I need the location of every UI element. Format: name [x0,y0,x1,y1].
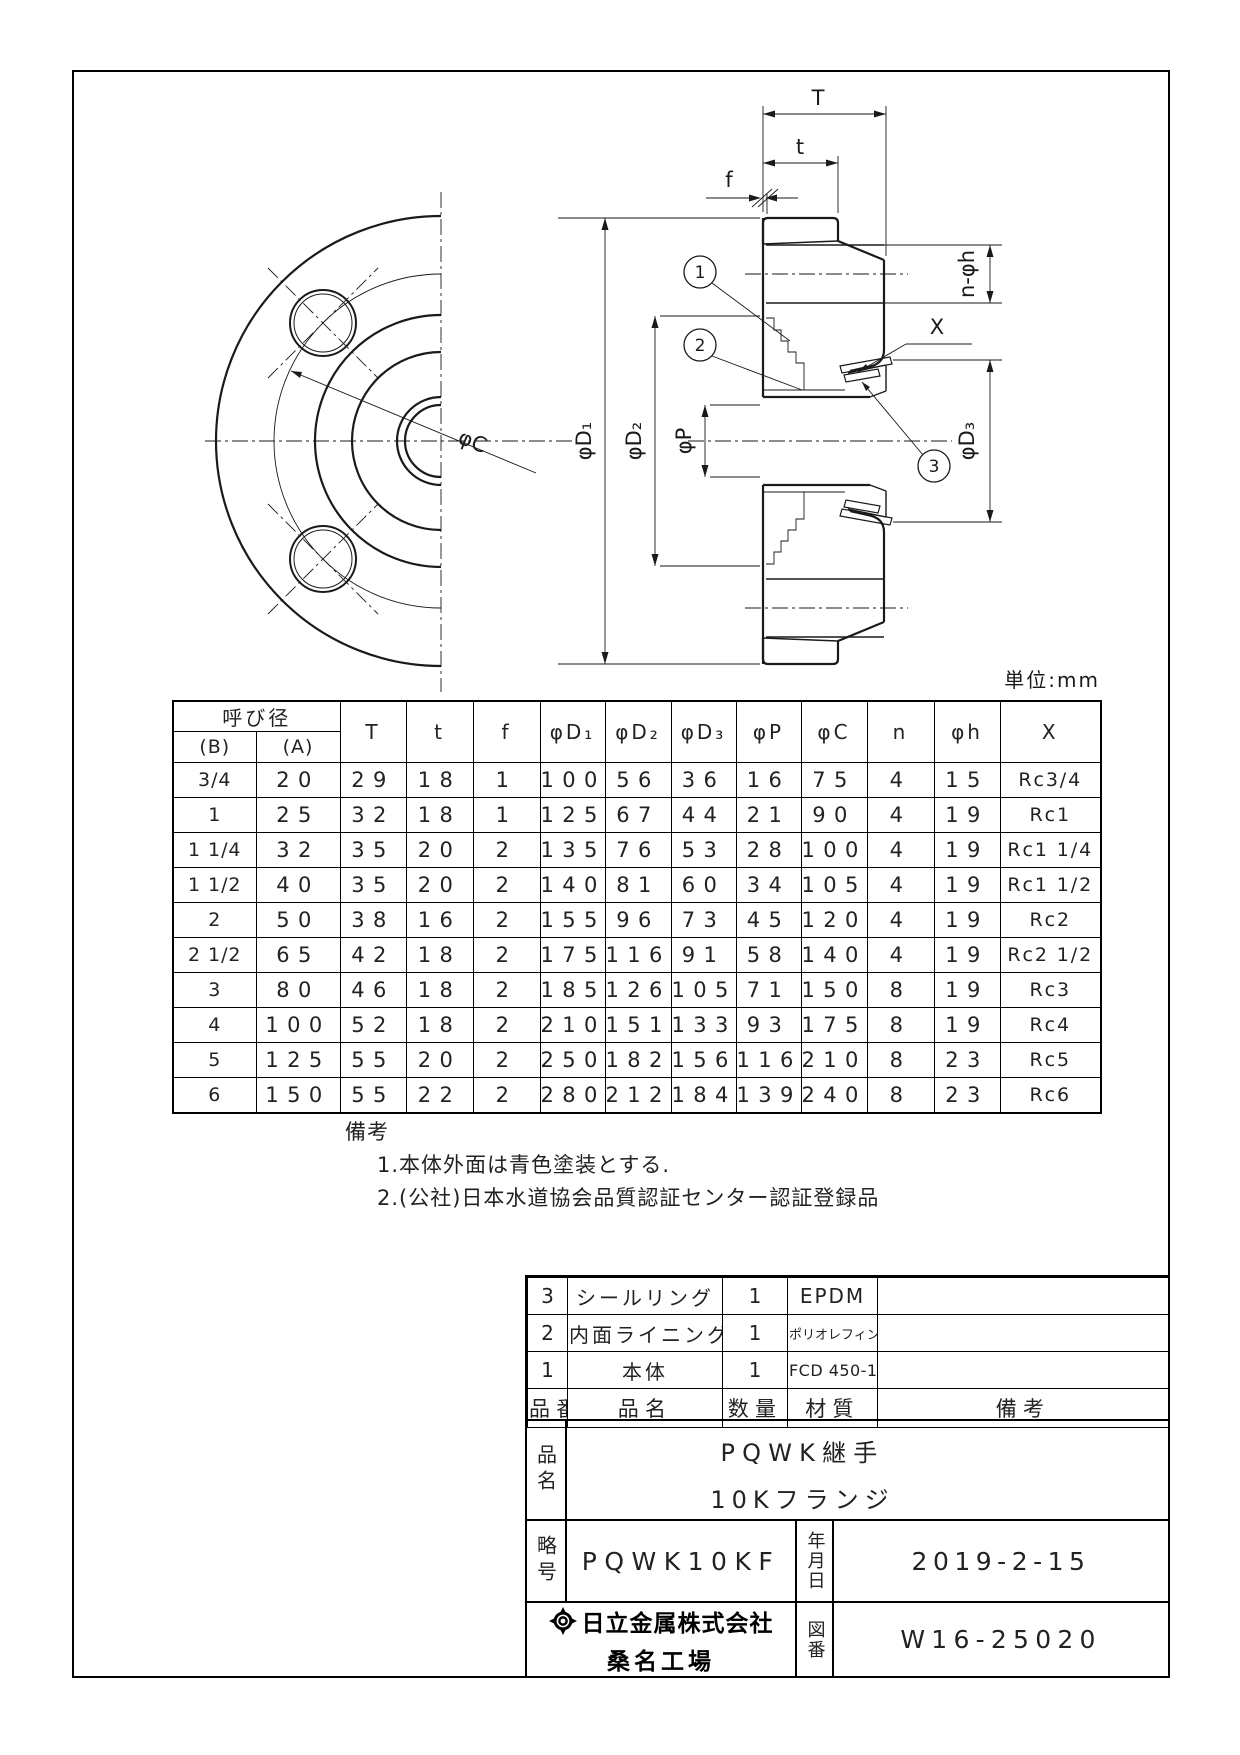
dim-cell: 19 [934,903,1000,938]
dim-label-t: t [796,135,804,159]
table-row: 1 1/43235202135765328100419Rc1 1/4 [173,833,1101,868]
dim-cell: 93 [736,1008,801,1043]
dim-cell: 18 [406,763,473,798]
dim-cell: 21 [736,798,801,833]
dimension-labels: T t f X n-φh φD₁ φD₂ φD₃ φP φC [455,86,979,460]
parts-cell [878,1278,1169,1315]
dim-cell: 105 [671,973,736,1008]
dim-cell: 212 [605,1078,671,1114]
dim-cell: 20 [406,833,473,868]
dim-cell: 91 [671,938,736,973]
dim-cell: 19 [934,973,1000,1008]
dim-label-phiP: φP [672,428,696,455]
company-name: 日立金属株式会社 [582,1604,774,1638]
dim-cell: 18 [406,973,473,1008]
dim-cell: 5 [173,1043,256,1078]
dim-cell: 23 [934,1078,1000,1114]
dim-cell: Rc1 1/2 [1000,868,1101,903]
date-label-cell: 年月日 [797,1521,834,1601]
dim-cell: Rc2 1/2 [1000,938,1101,973]
drawing-sheet: T t f X n-φh φD₁ φD₂ φD₃ φP φC 1 2 3 単位:… [0,0,1240,1755]
table-row: 1 1/24035202140816034105419Rc1 1/2 [173,868,1101,903]
dim-cell: 8 [867,1078,934,1114]
dim-header: X [1000,701,1101,763]
balloon-1: 1 [695,263,706,283]
parts-cell: EPDM [788,1278,878,1315]
dim-cell: 184 [671,1078,736,1114]
dim-header: φh [934,701,1000,763]
dim-cell: Rc2 [1000,903,1101,938]
dim-cell: 8 [867,973,934,1008]
dim-cell: 155 [540,903,605,938]
dim-subheader: (B) [173,732,256,763]
dim-cell: 4 [867,833,934,868]
dim-cell: 46 [340,973,406,1008]
parts-row: 3シールリング1EPDM [528,1278,1169,1315]
code-label-cell: 略号 [527,1521,567,1601]
front-centerlines [205,192,575,692]
dim-header: t [406,701,473,763]
company-cell: 日立金属株式会社 桑名工場 [527,1603,797,1676]
dim-cell: 151 [605,1008,671,1043]
dim-cell: Rc4 [1000,1008,1101,1043]
dim-cell: Rc1 1/4 [1000,833,1101,868]
dim-cell: 20 [406,868,473,903]
parts-list: 3シールリング1EPDM2内面ライニング1ポリオレフィン樹脂1本体1FCD 45… [527,1277,1169,1428]
dim-cell: 34 [736,868,801,903]
title-block: 3シールリング1EPDM2内面ライニング1ポリオレフィン樹脂1本体1FCD 45… [525,1275,1170,1678]
section-view [688,218,952,664]
dim-cell: 55 [340,1078,406,1114]
dim-cell: 55 [340,1043,406,1078]
parts-cell: FCD 450-10 [788,1352,878,1389]
dim-cell: 1 [173,798,256,833]
dim-cell: Rc3/4 [1000,763,1101,798]
balloon-leaders [712,283,923,455]
dim-cell: 25 [256,798,340,833]
dim-cell: 32 [340,798,406,833]
dim-cell: 90 [801,798,867,833]
dim-header: f [473,701,540,763]
dim-cell: 38 [340,903,406,938]
dim-cell: 3 [173,973,256,1008]
dim-cell: 175 [801,1008,867,1043]
dim-cell: 185 [540,973,605,1008]
dim-cell: 4 [867,798,934,833]
dim-cell: 116 [605,938,671,973]
date-label: 年月日 [802,1531,828,1591]
dim-subheader: (A) [256,732,340,763]
bolt-hole-top [268,268,378,378]
product-name-line1: PQWK継手 [720,1433,884,1468]
dim-cell: 3/4 [173,763,256,798]
dim-cell: 120 [801,903,867,938]
dim-cell: 210 [540,1008,605,1043]
dim-cell: 4 [867,903,934,938]
dim-header: n [867,701,934,763]
name-label-cell: 品名 [527,1421,567,1519]
dim-cell: Rc3 [1000,973,1101,1008]
dim-cell: 35 [340,868,406,903]
product-name-row: 品名 PQWK継手 10Kフランジ [527,1419,1168,1519]
dim-cell: 23 [934,1043,1000,1078]
dim-cell: 19 [934,868,1000,903]
dim-label-phiD3: φD₃ [955,422,979,460]
dim-cell: 18 [406,798,473,833]
dim-cell: 150 [801,973,867,1008]
table-row: 2 1/265421821751169158140419Rc2 1/2 [173,938,1101,973]
dim-cell: 16 [406,903,473,938]
dim-cell: 18 [406,1008,473,1043]
dim-header: φD₂ [605,701,671,763]
part-balloons: 1 2 3 [684,256,950,482]
parts-cell: ポリオレフィン樹脂 [788,1315,878,1352]
dim-cell: 76 [605,833,671,868]
parts-row: 1本体1FCD 450-10 [528,1352,1169,1389]
dim-cell: 1 1/2 [173,868,256,903]
dim-cell: 28 [736,833,801,868]
dim-cell: 100 [540,763,605,798]
balloon-2: 2 [695,336,706,356]
dim-cell: 18 [406,938,473,973]
factory-name: 桑名工場 [607,1642,715,1676]
dim-cell: 19 [934,938,1000,973]
notes-block: 備考 1.本体外面は青色塗装とする. 2.(公社)日本水道協会品質認証センター認… [345,1116,879,1215]
dim-cell: 19 [934,1008,1000,1043]
phiC-leader [291,371,536,473]
dimension-lines [558,106,1002,664]
parts-cell: 3 [528,1278,568,1315]
dim-label-f: f [725,168,733,192]
dim-cell: 4 [173,1008,256,1043]
dimension-arrowheads [602,111,994,665]
dim-cell: 58 [736,938,801,973]
dim-cell: 44 [671,798,736,833]
dim-cell: Rc1 [1000,798,1101,833]
dim-cell: 175 [540,938,605,973]
dim-cell: 16 [736,763,801,798]
table-row: 512555202250182156116210823Rc5 [173,1043,1101,1078]
dim-cell: 240 [801,1078,867,1114]
dim-cell: 280 [540,1078,605,1114]
code-row: 略号 PQWK10KF 年月日 2019-2-15 [527,1519,1168,1601]
dim-cell: 50 [256,903,340,938]
dim-cell: 19 [934,798,1000,833]
parts-list-body: 3シールリング1EPDM2内面ライニング1ポリオレフィン樹脂1本体1FCD 45… [528,1278,1169,1428]
note-item-1: 1.本体外面は青色塗装とする. [377,1149,879,1182]
notes-title: 備考 [345,1116,879,1149]
dim-cell: 126 [605,973,671,1008]
dim-cell: 139 [736,1078,801,1114]
dim-cell: 67 [605,798,671,833]
dim-cell: 6 [173,1078,256,1114]
hitachi-metals-logo [549,1607,577,1635]
parts-row: 2内面ライニング1ポリオレフィン樹脂 [528,1315,1169,1352]
table-row: 25038162155967345120419Rc2 [173,903,1101,938]
dim-cell: 140 [801,938,867,973]
dim-cell: 36 [671,763,736,798]
dim-cell: 133 [671,1008,736,1043]
parts-cell [878,1315,1169,1352]
dim-cell: 105 [801,868,867,903]
name-label: 品名 [532,1444,561,1496]
dim-header: T [340,701,406,763]
dim-header: φD₃ [671,701,736,763]
section-centerlines [688,274,952,608]
dim-cell: 8 [867,1043,934,1078]
dim-cell: 156 [671,1043,736,1078]
phiC-arrow [291,371,302,378]
dim-cell: 22 [406,1078,473,1114]
dim-cell: 1 [473,798,540,833]
note-item-2: 2.(公社)日本水道協会品質認証センター認証登録品 [377,1182,879,1215]
dim-table-head: 呼び径TtfφD₁φD₂φD₃φPφCnφhX(B)(A) [173,701,1101,763]
dim-cell: Rc5 [1000,1043,1101,1078]
dim-label-phiD2: φD₂ [622,422,646,460]
balloon-3: 3 [929,457,940,477]
dim-cell: 150 [256,1078,340,1114]
dim-cell: 60 [671,868,736,903]
code-label: 略号 [532,1535,561,1587]
dim-cell: 140 [540,868,605,903]
code-value: PQWK10KF [567,1521,797,1601]
dim-cell: 73 [671,903,736,938]
dim-header: φP [736,701,801,763]
dim-cell: 2 [473,973,540,1008]
dim-cell: 52 [340,1008,406,1043]
dim-cell: 100 [801,833,867,868]
dim-table-body: 3/4202918110056361675415Rc3/412532181125… [173,763,1101,1114]
lining-profile [766,318,804,390]
dim-cell: 96 [605,903,671,938]
dim-cell: 2 [473,938,540,973]
dim-cell: 135 [540,833,605,868]
dim-label-phiC: φC [455,425,490,458]
dim-cell: 4 [867,868,934,903]
parts-cell: 本体 [568,1352,723,1389]
parts-cell: 1 [528,1352,568,1389]
parts-cell [878,1352,1169,1389]
dim-header: φC [801,701,867,763]
dim-cell: 1 1/4 [173,833,256,868]
parts-cell: 1 [723,1278,788,1315]
table-row: 3804618218512610571150819Rc3 [173,973,1101,1008]
unit-note: 単位:mm [920,664,1100,693]
dim-cell: 2 [173,903,256,938]
dim-cell: 35 [340,833,406,868]
dim-cell: 20 [406,1043,473,1078]
dim-header-nominal: 呼び径 [173,701,340,732]
dim-cell: 80 [256,973,340,1008]
dim-cell: 2 [473,868,540,903]
dim-cell: 1 [473,763,540,798]
dim-cell: 75 [801,763,867,798]
dim-cell: 45 [736,903,801,938]
dim-cell: 210 [801,1043,867,1078]
dim-cell: 125 [256,1043,340,1078]
dim-label-n-phih: n-φh [955,250,979,298]
table-row: 1253218112567442190419Rc1 [173,798,1101,833]
table-row: 615055222280212184139240823Rc6 [173,1078,1101,1114]
dimension-table: 呼び径TtfφD₁φD₂φD₃φPφCnφhX(B)(A) 3/42029181… [172,700,1102,1114]
parts-cell: 1 [723,1352,788,1389]
dwgno-value: W16-25020 [834,1603,1168,1676]
dim-cell: 4 [867,763,934,798]
dim-cell: Rc6 [1000,1078,1101,1114]
parts-cell: 1 [723,1315,788,1352]
dim-cell: 250 [540,1043,605,1078]
dim-label-T: T [811,86,825,110]
dwgno-label-cell: 図番 [797,1603,834,1676]
dim-cell: 65 [256,938,340,973]
dim-cell: 19 [934,833,1000,868]
dim-cell: 2 [473,1008,540,1043]
dim-cell: 4 [867,938,934,973]
dim-cell: 2 1/2 [173,938,256,973]
parts-cell: 内面ライニング [568,1315,723,1352]
date-value: 2019-2-15 [834,1521,1168,1601]
product-name-line2: 10Kフランジ [710,1480,894,1515]
dim-cell: 2 [473,1078,540,1114]
table-row: 41005218221015113393175819Rc4 [173,1008,1101,1043]
dim-cell: 81 [605,868,671,903]
dim-label-X: X [930,315,944,339]
dim-cell: 2 [473,903,540,938]
company-row: 日立金属株式会社 桑名工場 図番 W16-25020 [527,1601,1168,1676]
dim-cell: 116 [736,1043,801,1078]
dwgno-label: 図番 [802,1620,828,1660]
dim-cell: 40 [256,868,340,903]
dim-cell: 8 [867,1008,934,1043]
dim-cell: 56 [605,763,671,798]
parts-cell: シールリング [568,1278,723,1315]
dim-header: φD₁ [540,701,605,763]
dim-cell: 15 [934,763,1000,798]
bolt-hole-bottom [268,504,378,614]
dim-cell: 42 [340,938,406,973]
dim-cell: 100 [256,1008,340,1043]
dim-cell: 71 [736,973,801,1008]
dim-cell: 32 [256,833,340,868]
dim-cell: 29 [340,763,406,798]
dim-cell: 2 [473,1043,540,1078]
dim-cell: 20 [256,763,340,798]
dim-cell: 125 [540,798,605,833]
dim-cell: 182 [605,1043,671,1078]
dim-cell: 2 [473,833,540,868]
dim-label-phiD1: φD₁ [572,422,596,460]
table-row: 3/4202918110056361675415Rc3/4 [173,763,1101,798]
front-view [205,192,575,692]
parts-cell: 2 [528,1315,568,1352]
dim-cell: 53 [671,833,736,868]
